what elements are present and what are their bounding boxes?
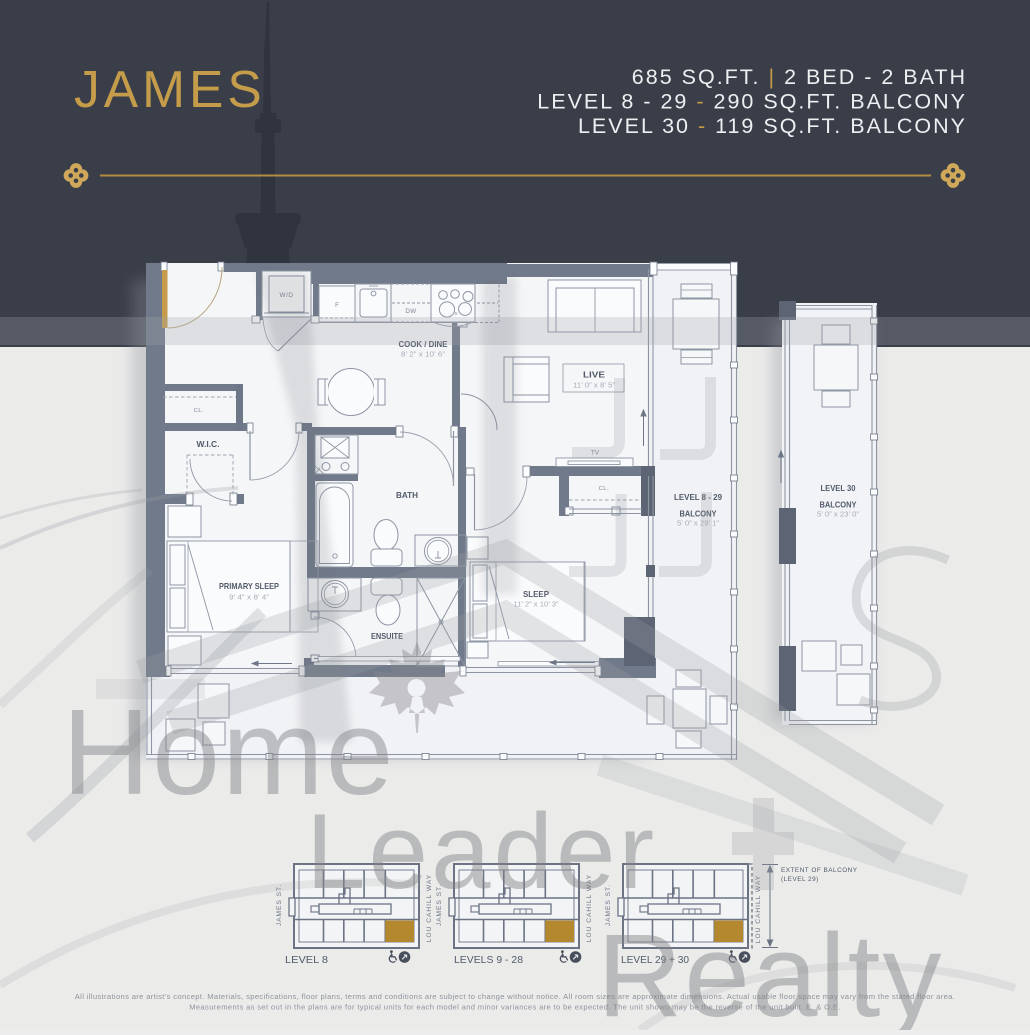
svg-text:SLEEP: SLEEP — [523, 590, 550, 599]
svg-text:S: S — [454, 311, 457, 316]
svg-text:Realty: Realty — [597, 910, 943, 1030]
svg-text:LEVEL 8: LEVEL 8 — [285, 955, 328, 966]
svg-text:(LEVEL 29): (LEVEL 29) — [781, 876, 819, 883]
svg-text:LEVEL 30 - 119 SQ.FT. BALCONY: LEVEL 30 - 119 SQ.FT. BALCONY — [578, 114, 967, 138]
svg-text:LEVELS 9 - 28: LEVELS 9 - 28 — [454, 955, 523, 966]
svg-text:LIVE: LIVE — [583, 371, 606, 380]
svg-text:685 SQ.FT. | 2 BED - 2 BATH: 685 SQ.FT. | 2 BED - 2 BATH — [632, 65, 967, 89]
svg-text:Leader: Leader — [306, 791, 657, 911]
svg-text:F: F — [335, 302, 339, 309]
svg-text:9’ 4” x 8’ 4”: 9’ 4” x 8’ 4” — [229, 593, 270, 602]
svg-text:CL.: CL. — [194, 408, 205, 414]
svg-text:5’ 0” x 29’ 1”: 5’ 0” x 29’ 1” — [677, 519, 720, 528]
svg-text:CL.: CL. — [599, 486, 610, 492]
svg-text:LEVEL 8 - 29 - 290 SQ.FT. BALC: LEVEL 8 - 29 - 290 SQ.FT. BALCONY — [537, 90, 967, 114]
svg-text:8’ 2” x 10’ 6”: 8’ 2” x 10’ 6” — [401, 350, 445, 359]
svg-text:LEVEL 8 - 29: LEVEL 8 - 29 — [674, 493, 723, 502]
svg-text:11’ 0” x 8’ 5”: 11’ 0” x 8’ 5” — [573, 381, 615, 390]
svg-text:W.I.C.: W.I.C. — [197, 440, 220, 449]
svg-text:11’ 2” x 10’ 3”: 11’ 2” x 10’ 3” — [514, 600, 559, 609]
svg-text:LEVEL 30: LEVEL 30 — [821, 484, 857, 493]
svg-text:BALCONY: BALCONY — [820, 501, 858, 510]
svg-text:JAMES: JAMES — [74, 60, 266, 118]
svg-text:5’ 0” x 23’ 0”: 5’ 0” x 23’ 0” — [817, 510, 860, 519]
svg-text:PRIMARY SLEEP: PRIMARY SLEEP — [219, 582, 279, 591]
svg-text:BATH: BATH — [396, 491, 418, 500]
svg-text:EXTENT OF BALCONY: EXTENT OF BALCONY — [781, 867, 858, 874]
svg-text:DW: DW — [405, 308, 416, 315]
